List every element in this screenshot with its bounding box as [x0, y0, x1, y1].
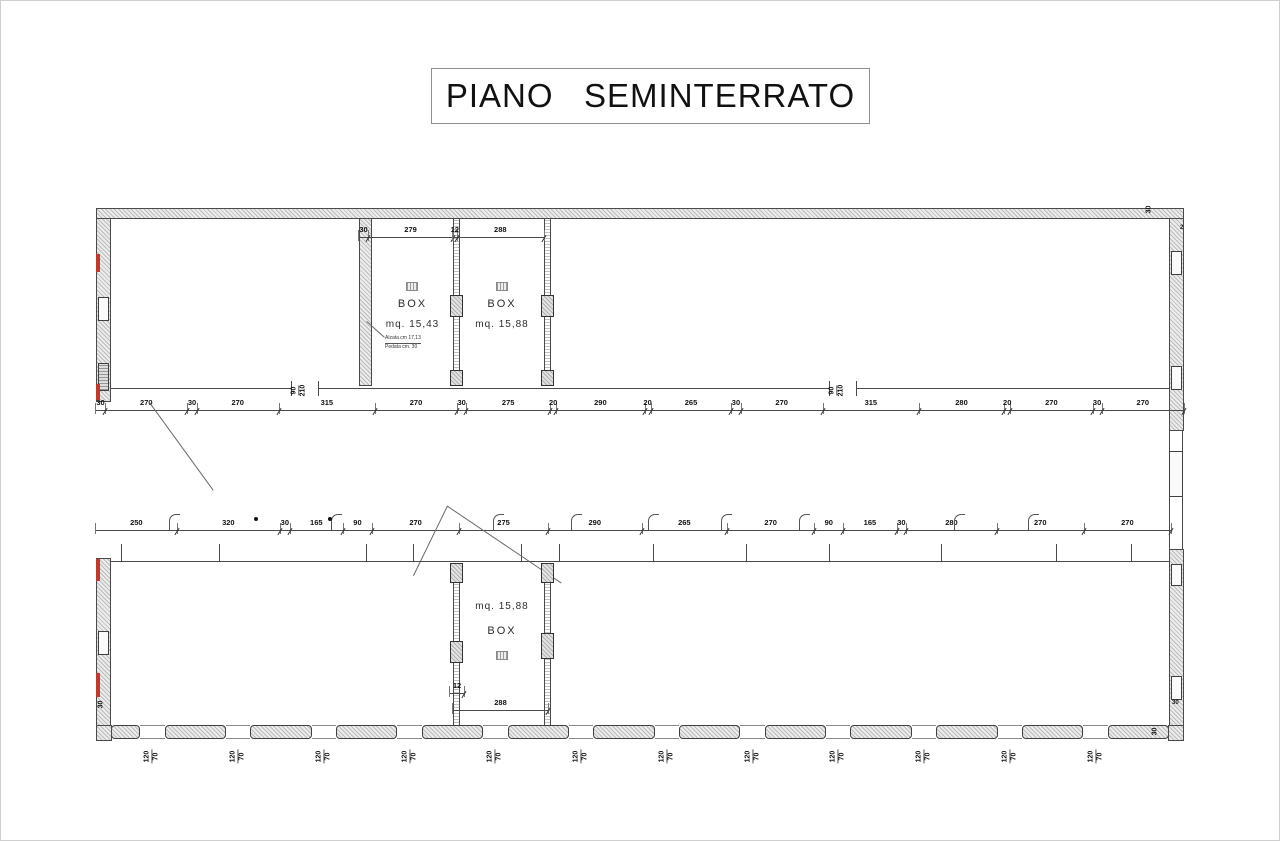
lower-bottom-right-corner	[1168, 725, 1184, 741]
window-opening: 12070	[226, 725, 250, 739]
window-size-label: 12070	[230, 750, 247, 764]
window-opening: 12070	[397, 725, 421, 739]
dim-segment: 90	[343, 519, 372, 534]
room-box3-area: mq. 15,88	[460, 601, 544, 612]
wall-pier	[1022, 725, 1083, 739]
dim-value: 270	[775, 399, 788, 407]
wall-pier	[1108, 725, 1169, 739]
wall-pier	[165, 725, 226, 739]
room-name: BOX	[460, 298, 544, 310]
wall-thickness-label: 30	[1172, 700, 1179, 706]
door-jamb	[318, 381, 319, 396]
wall-edge-line	[111, 388, 291, 389]
dim-value: 290	[588, 519, 601, 527]
dim-segment: 30	[280, 519, 290, 534]
middle-dimension-row: 2503203016590270275290265270901653028027…	[96, 519, 1171, 534]
dim-segment: 279	[368, 226, 453, 241]
upper-dimension-row: 3027030270315270302752029020265302703152…	[96, 399, 1184, 414]
floor-plan-canvas: PIANO SEMINTERRATO BOX mq. 15,43 BOX mq.…	[0, 0, 1280, 841]
dim-segment: 290	[556, 399, 644, 414]
dim-segment: 270	[372, 519, 459, 534]
flue-icon	[954, 514, 965, 530]
wall-stub	[746, 544, 747, 561]
dim-segment: 265	[651, 399, 732, 414]
wall-pier	[508, 725, 569, 739]
window-opening: 12070	[312, 725, 336, 739]
grille-icon	[406, 282, 418, 291]
box1-top-dimensions: 30279	[359, 226, 453, 241]
pilaster	[541, 563, 554, 583]
dim-value: 250	[130, 519, 143, 527]
dim-value: 30	[281, 519, 289, 527]
lower-bottom-left-corner	[96, 725, 112, 741]
dim-segment: 90	[814, 519, 843, 534]
dim-value: 30	[732, 399, 740, 407]
pilaster	[450, 563, 463, 583]
dim-value: 12	[453, 682, 461, 690]
dim-value: 270	[1045, 399, 1058, 407]
wall-stub	[559, 544, 560, 561]
upper-top-wall	[96, 208, 1184, 219]
pilaster	[450, 370, 463, 386]
red-accent-mark	[96, 673, 100, 697]
dim-segment: 320	[177, 519, 280, 534]
dim-value: 165	[310, 519, 323, 527]
dim-value: 275	[502, 399, 515, 407]
wall-pier	[679, 725, 740, 739]
dim-value: 30	[188, 399, 196, 407]
window-opening: 12070	[998, 725, 1022, 739]
flue-icon	[331, 514, 342, 530]
wall-stub	[653, 544, 654, 561]
grille-icon	[496, 282, 508, 291]
red-accent-mark	[96, 559, 100, 581]
window-opening	[1171, 251, 1182, 275]
wall-pier	[765, 725, 826, 739]
window-opening: 12070	[826, 725, 850, 739]
dim-value: 288	[494, 226, 507, 234]
wall-stub	[366, 544, 367, 561]
door-jamb	[856, 381, 857, 396]
wall-stub	[521, 544, 522, 561]
wall-thickness-label: 30	[97, 701, 104, 709]
dim-segment: 12	[450, 682, 464, 697]
stair-note-line2: Pedata cm. 30	[385, 344, 421, 352]
dim-segment: 270	[741, 399, 823, 414]
wall-pier	[593, 725, 654, 739]
dim-value: 265	[678, 519, 691, 527]
leader-line	[413, 506, 448, 577]
dim-segment: 30	[1093, 399, 1102, 414]
dim-value: 280	[955, 399, 968, 407]
window-opening	[98, 297, 109, 321]
dim-value: 30	[458, 399, 466, 407]
dim-segment: 280	[919, 399, 1004, 414]
stair-note: Alzata cm 17,13 Pedata cm. 30	[385, 335, 421, 351]
dim-segment: 275	[466, 399, 550, 414]
wall-stub	[121, 544, 122, 561]
dim-segment: 30	[731, 399, 740, 414]
wall-stub	[1056, 544, 1057, 561]
door-size-label: 90 210	[828, 385, 845, 397]
pilaster	[541, 370, 554, 386]
wall-stub	[219, 544, 220, 561]
flue-icon	[493, 514, 504, 530]
dim-segment: 270	[197, 399, 279, 414]
room-name: BOX	[460, 625, 544, 637]
wall-pier	[850, 725, 911, 739]
wall-edge-line	[856, 388, 1169, 389]
flue-icon	[571, 514, 582, 530]
wall-edge-line	[318, 388, 829, 389]
window-opening: 12070	[1083, 725, 1107, 739]
wall-pier	[936, 725, 997, 739]
dim-segment: 270	[105, 399, 187, 414]
dim-value: 90	[353, 519, 361, 527]
dim-value: 320	[222, 519, 235, 527]
plan-title: PIANO SEMINTERRATO	[431, 68, 870, 124]
wall-thickness-label: 30	[1151, 728, 1158, 736]
dim-segment: 250	[96, 519, 177, 534]
window-opening	[1171, 564, 1182, 586]
window-size-label: 12070	[573, 750, 590, 764]
dim-value: 270	[409, 519, 422, 527]
window-opening: 12070	[740, 725, 764, 739]
window-opening	[1171, 366, 1182, 390]
room-name: BOX	[372, 298, 453, 310]
window-size-label: 12070	[401, 750, 418, 764]
dim-value: 270	[1121, 519, 1134, 527]
wall-thickness-label: 30	[1145, 206, 1152, 214]
dim-value: 30	[96, 399, 104, 407]
wall-pier	[336, 725, 397, 739]
door-size-label: 90 210	[290, 385, 307, 397]
wall-pier	[111, 725, 140, 739]
flue-icon	[648, 514, 659, 530]
dim-value: 165	[864, 519, 877, 527]
dim-value: 30	[359, 226, 367, 234]
dim-segment: 270	[1084, 519, 1171, 534]
flue-icon	[1028, 514, 1039, 530]
dim-value: 270	[410, 399, 423, 407]
dim-segment: 270	[1102, 399, 1184, 414]
flue-icon	[169, 514, 180, 530]
dim-segment: 280	[906, 519, 996, 534]
wall-pier	[250, 725, 311, 739]
dim-value: 288	[494, 699, 507, 707]
dim-value: 315	[321, 399, 334, 407]
partition-dimension: 12	[450, 682, 464, 697]
window-size-label: 12070	[916, 750, 933, 764]
window-size-label: 12070	[1001, 750, 1018, 764]
wall-edge-line	[111, 561, 1169, 562]
dim-segment: 315	[279, 399, 375, 414]
window-size-label: 12070	[830, 750, 847, 764]
stair-note-line1: Alzata cm 17,13	[385, 335, 421, 344]
dim-segment: 288	[453, 699, 548, 714]
box3-width-dimension: 288	[453, 699, 548, 714]
dim-value: 30	[897, 519, 905, 527]
room-box3: BOX	[460, 625, 544, 637]
wall-stub	[1131, 544, 1132, 561]
wall-stub	[829, 544, 830, 561]
reference-line	[148, 401, 213, 491]
dim-value: 279	[404, 226, 417, 234]
dim-value: 270	[764, 519, 777, 527]
dim-value: 270	[1137, 399, 1150, 407]
dim-segment: 30	[897, 519, 907, 534]
dim-value: 90	[825, 519, 833, 527]
window-size-label: 12070	[658, 750, 675, 764]
window-size-label: 12070	[144, 750, 161, 764]
dim-segment: 30	[187, 399, 196, 414]
dim-value: 315	[865, 399, 878, 407]
dim-segment: 30	[96, 399, 105, 414]
point-marker	[328, 517, 332, 521]
wall-stub	[941, 544, 942, 561]
room-box1-area: mq. 15,43	[372, 319, 453, 330]
room-area: mq. 15,88	[460, 319, 544, 330]
dim-value: 270	[231, 399, 244, 407]
dim-value: 30	[1093, 399, 1101, 407]
window-size-label: 12070	[744, 750, 761, 764]
pilaster	[450, 641, 463, 663]
dim-segment: 30	[359, 226, 368, 241]
room-area: mq. 15,88	[460, 601, 544, 612]
window-opening	[98, 631, 109, 655]
room-box2: BOX	[460, 298, 544, 310]
dim-segment: 270	[375, 399, 457, 414]
window-size-label: 12070	[1087, 750, 1104, 764]
flue-icon	[721, 514, 732, 530]
window-size-label: 12070	[487, 750, 504, 764]
dim-segment: 270	[997, 519, 1084, 534]
box2-top-dimensions: 12288	[453, 226, 544, 241]
dim-value: 290	[594, 399, 607, 407]
dim-segment: 270	[1010, 399, 1092, 414]
dim-value: 265	[685, 399, 698, 407]
flue-icon	[799, 514, 810, 530]
window-opening: 12070	[655, 725, 679, 739]
window-size-label: 12070	[315, 750, 332, 764]
wall-stub	[413, 544, 414, 561]
window-row: 1207012070120701207012070120701207012070…	[111, 725, 1169, 739]
dim-segment: 288	[457, 226, 544, 241]
room-box1: BOX	[372, 298, 453, 310]
corner-note: 2	[1180, 225, 1183, 231]
upper-thick-partition	[359, 218, 372, 386]
dim-segment: 290	[548, 519, 642, 534]
window-opening: 12070	[569, 725, 593, 739]
wall-pier	[422, 725, 483, 739]
window-opening: 12070	[483, 725, 507, 739]
room-box2-area: mq. 15,88	[460, 319, 544, 330]
room-area: mq. 15,43	[372, 319, 453, 330]
grille-icon	[496, 651, 508, 660]
window-opening	[1171, 676, 1182, 700]
window-opening: 12070	[912, 725, 936, 739]
window-opening	[1169, 451, 1183, 497]
red-accent-mark	[96, 254, 100, 272]
dim-segment: 30	[457, 399, 466, 414]
window-opening: 12070	[140, 725, 164, 739]
dim-segment: 315	[823, 399, 919, 414]
point-marker	[254, 517, 258, 521]
dim-segment: 165	[843, 519, 896, 534]
